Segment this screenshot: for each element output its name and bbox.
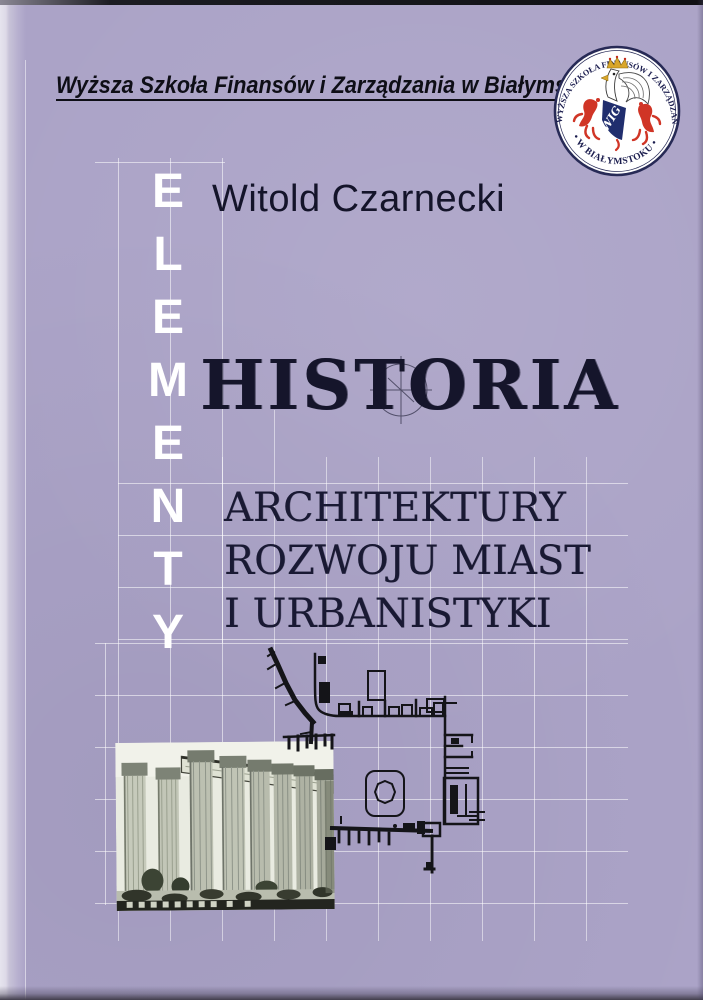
vertical-letter: N [142, 475, 194, 538]
book-spine-edge [0, 0, 26, 1000]
vertical-letter: Y [142, 601, 194, 664]
scan-edge-right [697, 0, 703, 1000]
vertical-letter: E [142, 286, 194, 349]
grid-lines-bottom-ticks [118, 905, 628, 941]
subtitle-line-2: ROZWOJU MIAST [224, 539, 644, 583]
subtitle-line-3: I URBANISTYKI [224, 592, 644, 636]
compass-construction-marks [368, 350, 434, 428]
ancient-city-plan-drawing [255, 640, 495, 885]
scan-edge-bottom [0, 986, 703, 1000]
university-seal-logo: WYŻSZA SZKOŁA FINANSÓW I ZARZĄDZANIA • W… [551, 44, 683, 178]
vertical-letter: T [142, 538, 194, 601]
spine-fold-line [25, 60, 26, 1000]
scan-edge-top [0, 0, 703, 5]
vertical-letter: L [142, 223, 194, 286]
vertical-letter: E [142, 160, 194, 223]
subtitle-line-1: ARCHITEKTURY [224, 486, 644, 530]
publisher-name: Wyższa Szkoła Finansów i Zarządzania w B… [56, 72, 542, 100]
book-cover: Wyższa Szkoła Finansów i Zarządzania w B… [0, 0, 703, 1000]
author-name: Witold Czarnecki [212, 178, 532, 221]
